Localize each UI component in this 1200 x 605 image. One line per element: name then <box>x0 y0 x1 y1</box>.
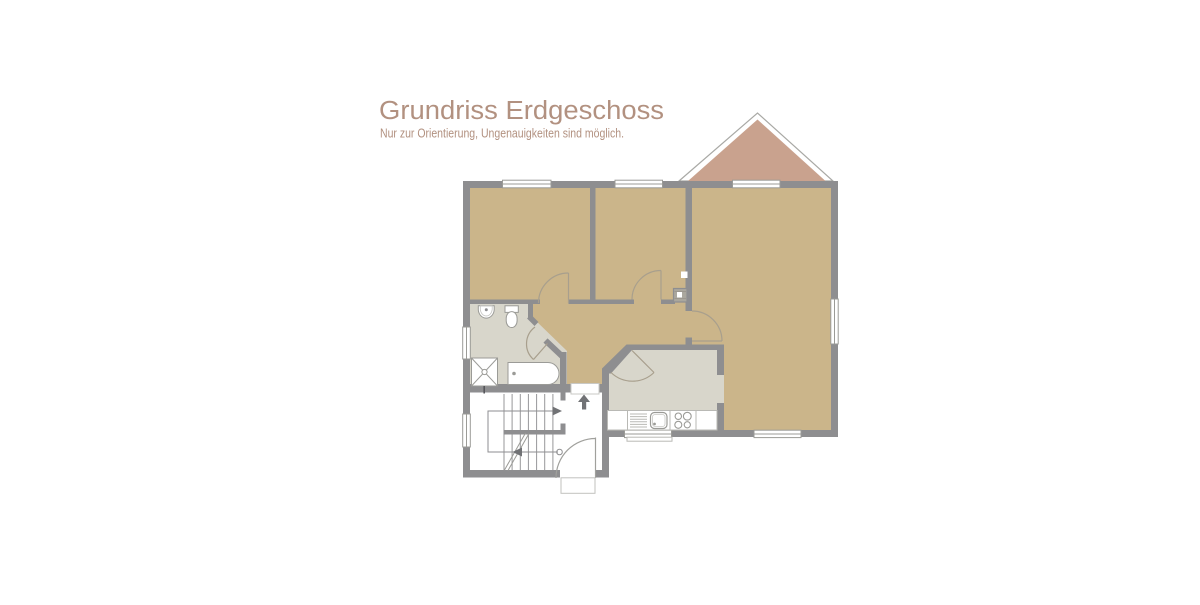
svg-text:Nur zur Orientierung, Ungenaui: Nur zur Orientierung, Ungenauigkeiten si… <box>380 126 624 141</box>
svg-text:Grundriss Erdgeschoss: Grundriss Erdgeschoss <box>379 97 664 125</box>
